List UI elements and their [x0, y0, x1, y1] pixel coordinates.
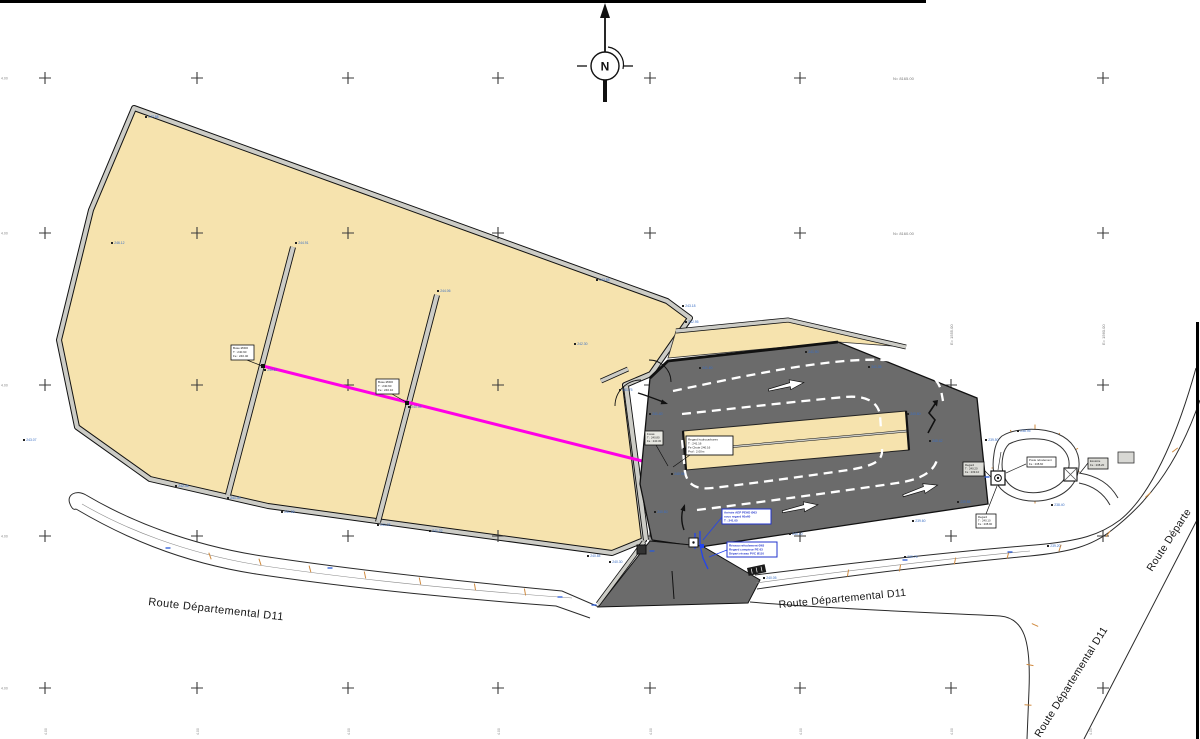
callout-line: Départ réseau PVC Ø110 — [729, 552, 764, 556]
north-letter: N — [601, 60, 610, 74]
spot-point — [1017, 430, 1019, 432]
spot-point — [699, 367, 701, 369]
spot-point — [671, 473, 673, 475]
spot-elevation-label: 244.06 — [440, 289, 450, 293]
edge-mark-left: 4.00 — [1, 535, 8, 539]
grid-coordinate-label-rotated: E= 1555.00 — [949, 324, 954, 345]
spot-point — [985, 439, 987, 441]
spot-point — [929, 440, 931, 442]
spot-point — [609, 561, 611, 563]
callout-line: Fe : 240.30 — [647, 439, 662, 443]
callout-buse2: Buse Ø300 T : 240.60 Fe : 240.10 — [376, 379, 399, 394]
callout-regard-pompe: Regard T : 240.10 Fe : 238.90 — [976, 514, 996, 528]
spot-point — [23, 439, 25, 441]
spot-elevation-label: 243.55 — [599, 278, 609, 282]
valve-square — [700, 544, 704, 548]
spot-elevation-label: 239.20 — [1050, 544, 1060, 548]
callout-line: Fe : 238.90 — [978, 522, 993, 526]
spot-elevation-label: 240.60 — [657, 510, 667, 514]
spot-point — [912, 520, 914, 522]
spot-elevation-label: 239.85 — [960, 500, 970, 504]
callout-buse1: Buse Ø300 T : 240.90 Fe : 240.40 — [231, 345, 254, 360]
spot-elevation-label: 240.42 — [932, 439, 942, 443]
edge-mark-bottom: 4.00 — [649, 728, 653, 735]
callout-line: Fe : 238.60 — [1029, 462, 1044, 466]
site-plan-drawing: Buse Ø300 T : 240.90 Fe : 240.40 Buse Ø3… — [0, 0, 1200, 739]
spot-point — [596, 279, 598, 281]
manhole-dot — [692, 541, 694, 543]
edge-mark-left: 4.00 — [1, 384, 8, 388]
spot-elevation-label: 238.40 — [1054, 503, 1064, 507]
spot-elevation-label: 244.91 — [298, 241, 308, 245]
callout-regard-droite: Regard T : 240.20 Fe : 239.10 — [963, 462, 984, 476]
spot-point — [649, 413, 651, 415]
spot-elevation-label: 238.95 — [1020, 429, 1030, 433]
spot-point — [264, 369, 266, 371]
grid-coordinate-label: N= 8165.00 — [893, 76, 915, 81]
manhole-dark — [637, 545, 646, 554]
spot-elevation-label: 242.95 — [688, 320, 698, 324]
spot-elevation-label: 241.40 — [652, 412, 662, 416]
spot-elevation-label: 239.50 — [988, 438, 998, 442]
grid-coordinate-label-rotated: E= 1560.00 — [1101, 324, 1106, 345]
callout-regard-hydro: Regard hydrocarbures T : 241.16 Fe Chute… — [686, 436, 733, 455]
edge-mark-bottom: 4.00 — [799, 728, 803, 735]
edge-mark-left: 4.00 — [1, 77, 8, 81]
callout-exutoire: Exutoire Fe : 238.20 — [1088, 458, 1108, 469]
spot-point — [685, 321, 687, 323]
spot-point — [1047, 545, 1049, 547]
spot-point — [295, 242, 297, 244]
spot-point — [907, 413, 909, 415]
spot-point — [868, 366, 870, 368]
spot-point — [574, 343, 576, 345]
spot-point — [957, 501, 959, 503]
spot-point — [587, 555, 589, 557]
spot-elevation-label: 240.84 — [590, 554, 600, 558]
spot-point — [227, 497, 229, 499]
spot-elevation-label: 240.10 — [792, 532, 802, 536]
spot-point — [111, 242, 113, 244]
callout-line: Fe : 239.10 — [965, 470, 980, 474]
spot-point — [281, 511, 283, 513]
edge-mark-bottom: 4.00 — [196, 728, 200, 735]
spot-elevation-label: 243.07 — [26, 438, 36, 442]
spot-point — [1051, 504, 1053, 506]
spot-elevation-label: 241.05 — [380, 523, 390, 527]
callout-line: Fe : 238.20 — [1090, 463, 1105, 467]
spot-elevation-label: 247.88 — [148, 115, 158, 119]
edge-mark-left: 4.00 — [1, 687, 8, 691]
spot-point — [789, 533, 791, 535]
spot-elevation-label: 241.98 — [284, 510, 294, 514]
spot-point — [654, 511, 656, 513]
spot-elevation-label: 239.60 — [915, 519, 925, 523]
spot-elevation-label: 241.22 — [432, 529, 442, 533]
spot-elevation-label: 241.75 — [622, 388, 632, 392]
edge-mark-bottom: 4.00 — [347, 728, 351, 735]
spot-elevation-label: 239.75 — [907, 555, 917, 559]
spot-point — [429, 530, 431, 532]
spot-elevation-label: 243.18 — [685, 304, 695, 308]
spot-point — [145, 116, 147, 118]
callout-line: T : 241.05 — [724, 519, 738, 523]
spot-point — [805, 351, 807, 353]
spot-elevation-label: 240.80 — [910, 412, 920, 416]
edge-mark-bottom: 4.00 — [1089, 728, 1093, 735]
small-structure — [1118, 452, 1134, 463]
spot-elevation-label: 240.55 — [411, 405, 421, 409]
spot-elevation-label: 246.12 — [114, 241, 124, 245]
spot-point — [437, 290, 439, 292]
spot-elevation-label: 240.98 — [674, 472, 684, 476]
grid-coordinate-label: N= 8160.00 — [893, 231, 915, 236]
spot-point — [408, 406, 410, 408]
spot-elevation-label: 241.35 — [871, 365, 881, 369]
pump-station-dot — [997, 477, 999, 479]
callout-fosse: Fossé T : 240.80 Fe : 240.30 — [645, 431, 663, 445]
edge-mark-bottom: 4.00 — [497, 728, 501, 735]
spot-point — [377, 524, 379, 526]
callout-poste: Poste refoulement Fe : 238.60 — [1027, 457, 1056, 467]
callout-refoulement: Réseau refoulement Ø63 Regard compteur P… — [727, 542, 777, 557]
edge-mark-left: 4.00 — [1, 232, 8, 236]
callout-aep: Arrivée AEP PEHD Ø63 sous regard 60x60 T… — [722, 509, 771, 524]
spot-elevation-label: 241.60 — [702, 366, 712, 370]
spot-point — [682, 305, 684, 307]
spot-point — [763, 577, 765, 579]
site-plan-canvas: Buse Ø300 T : 240.90 Fe : 240.40 Buse Ø3… — [0, 0, 1200, 739]
edge-mark-bottom: 4.00 — [950, 728, 954, 735]
callout-line: Fe : 240.10 — [378, 388, 394, 392]
spot-point — [175, 485, 177, 487]
callout-line: Fe : 240.40 — [233, 354, 249, 358]
spot-elevation-label: 240.30 — [612, 560, 622, 564]
spot-elevation-label: 240.87 — [267, 368, 277, 372]
spot-point — [619, 389, 621, 391]
spot-point — [904, 556, 906, 558]
edge-mark-bottom: 4.00 — [44, 728, 48, 735]
spot-elevation-label: 240.05 — [766, 576, 776, 580]
spot-elevation-label: 242.30 — [577, 342, 587, 346]
callout-line: Prof : 2.00m — [688, 450, 705, 454]
spot-elevation-label: 242.46 — [178, 484, 188, 488]
spot-elevation-label: 241.90 — [808, 350, 818, 354]
slope-tick — [1025, 705, 1032, 706]
spot-elevation-label: 241.40 — [230, 496, 240, 500]
